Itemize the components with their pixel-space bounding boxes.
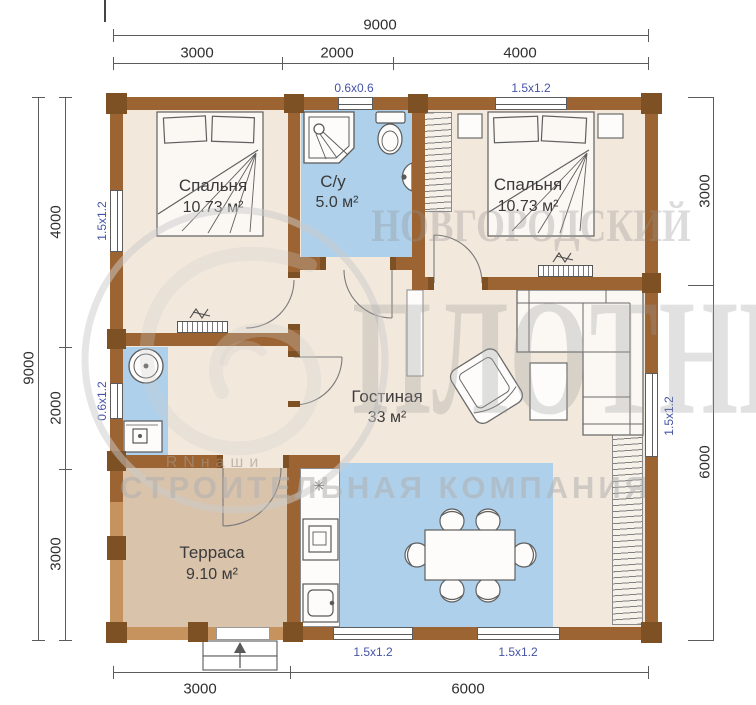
dim-tick xyxy=(648,29,649,42)
window-size-label: 1.5x1.2 xyxy=(95,201,109,240)
terrace-post xyxy=(188,622,208,642)
dim-tick xyxy=(688,640,714,641)
door-jamb xyxy=(320,257,326,270)
dim-tick xyxy=(688,97,714,98)
window-size-label: 1.5x1.2 xyxy=(511,81,550,95)
wall-joint xyxy=(106,93,127,114)
wall-hall-terrace xyxy=(110,455,223,468)
floor-bathroom xyxy=(301,110,412,257)
dim-tick xyxy=(648,666,649,679)
room-area-bedroom1: 10.73 м² xyxy=(183,199,244,217)
room-label-living: Гостиная xyxy=(351,387,422,407)
room-area-living: 33 м² xyxy=(368,409,407,427)
wall-bathroom-left xyxy=(288,110,300,278)
room-label-bathroom: С/у xyxy=(320,172,346,192)
wall-joint xyxy=(641,93,662,114)
wall-joint xyxy=(408,94,428,113)
dim-line xyxy=(113,35,648,36)
terrace-post xyxy=(106,622,127,643)
dim-tick xyxy=(32,640,45,641)
dim-label: 3000 xyxy=(697,174,714,207)
dim-line xyxy=(113,672,648,673)
room-label-bedroom2: Спальня xyxy=(494,175,562,195)
wall-joint xyxy=(107,329,126,349)
dim-tick xyxy=(59,469,72,470)
window-size-label: 0.6x0.6 xyxy=(334,81,373,95)
wall-outer-right xyxy=(645,97,658,640)
crop-artifact-line xyxy=(104,0,106,22)
window-size-label: 1.5x1.2 xyxy=(662,396,676,435)
window-icon xyxy=(338,97,373,110)
wall-joint xyxy=(107,451,126,471)
dim-line xyxy=(65,97,66,640)
wall-bedroom2-bottom xyxy=(482,277,645,290)
dim-tick xyxy=(290,666,291,679)
dim-line xyxy=(38,97,39,640)
dim-label: 3000 xyxy=(180,45,213,62)
window-icon xyxy=(645,373,658,457)
door-jamb xyxy=(283,455,289,468)
dim-tick xyxy=(32,97,45,98)
dim-label-left-total: 9000 xyxy=(21,351,38,384)
window-icon xyxy=(333,627,413,640)
floor-plan: ✳ Спальня 10.73 м² С/у 5.0 м² Спальня 10… xyxy=(0,0,756,705)
door-jamb xyxy=(288,401,300,407)
wall-outer-top xyxy=(110,97,658,110)
terrace-entry-opening xyxy=(216,627,270,640)
window-icon xyxy=(477,627,560,640)
dim-tick xyxy=(113,666,114,679)
stove-icon: ✳ xyxy=(313,478,325,495)
wall-joint xyxy=(641,622,662,643)
door-jamb xyxy=(288,272,300,278)
door-jamb xyxy=(428,277,434,290)
room-label-terrace: Терраса xyxy=(179,543,244,563)
dim-label: 6000 xyxy=(697,445,714,478)
dim-label: 3000 xyxy=(48,537,65,570)
dim-line xyxy=(113,63,648,64)
wall-bedroom1-bottom xyxy=(110,333,300,346)
window-size-label: 1.5x1.2 xyxy=(353,645,392,659)
door-jamb xyxy=(288,351,300,357)
door-jamb xyxy=(288,324,300,330)
dim-label-top-total: 9000 xyxy=(363,17,396,34)
dim-tick xyxy=(113,57,114,70)
door-jamb xyxy=(390,257,396,270)
room-area-terrace: 9.10 м² xyxy=(186,566,238,584)
dim-tick xyxy=(59,640,72,641)
wall-joint xyxy=(642,273,661,293)
radiator-icon xyxy=(538,265,593,277)
dim-label: 4000 xyxy=(503,45,536,62)
dim-label: 4000 xyxy=(48,205,65,238)
window-size-label: 0.6x1.2 xyxy=(95,381,109,420)
terrace-post xyxy=(107,536,126,560)
dim-tick xyxy=(393,57,394,70)
floor-dining xyxy=(337,463,553,627)
window-icon xyxy=(495,97,567,110)
dim-tick xyxy=(688,285,714,286)
floor-utility xyxy=(123,347,168,455)
wall-outer-left xyxy=(110,97,123,502)
wall-joint xyxy=(283,622,303,642)
dim-label: 6000 xyxy=(451,681,484,698)
room-area-bathroom: 5.0 м² xyxy=(315,194,358,212)
door-jamb xyxy=(217,455,223,468)
window-icon xyxy=(110,190,123,252)
dim-tick xyxy=(113,29,114,42)
dim-label: 3000 xyxy=(183,681,216,698)
entry-steps-icon xyxy=(203,641,277,670)
room-area-bedroom2: 10.73 м² xyxy=(498,198,559,216)
dim-tick xyxy=(648,57,649,70)
wardrobe-icon xyxy=(422,112,452,212)
wall-joint xyxy=(284,94,304,113)
radiator-icon xyxy=(177,321,228,333)
wardrobe-icon xyxy=(612,432,643,625)
dim-tick xyxy=(282,57,283,70)
dim-tick xyxy=(59,347,72,348)
window-icon xyxy=(110,383,123,419)
dim-label: 2000 xyxy=(320,45,353,62)
dim-label: 2000 xyxy=(48,391,65,424)
door-jamb xyxy=(482,277,488,290)
terrace-wall-left xyxy=(110,502,123,640)
dim-tick xyxy=(59,97,72,98)
window-size-label: 1.5x1.2 xyxy=(498,645,537,659)
wall-terrace-right xyxy=(287,455,300,640)
room-label-bedroom1: Спальня xyxy=(179,176,247,196)
wall-bathroom-right xyxy=(412,110,425,290)
